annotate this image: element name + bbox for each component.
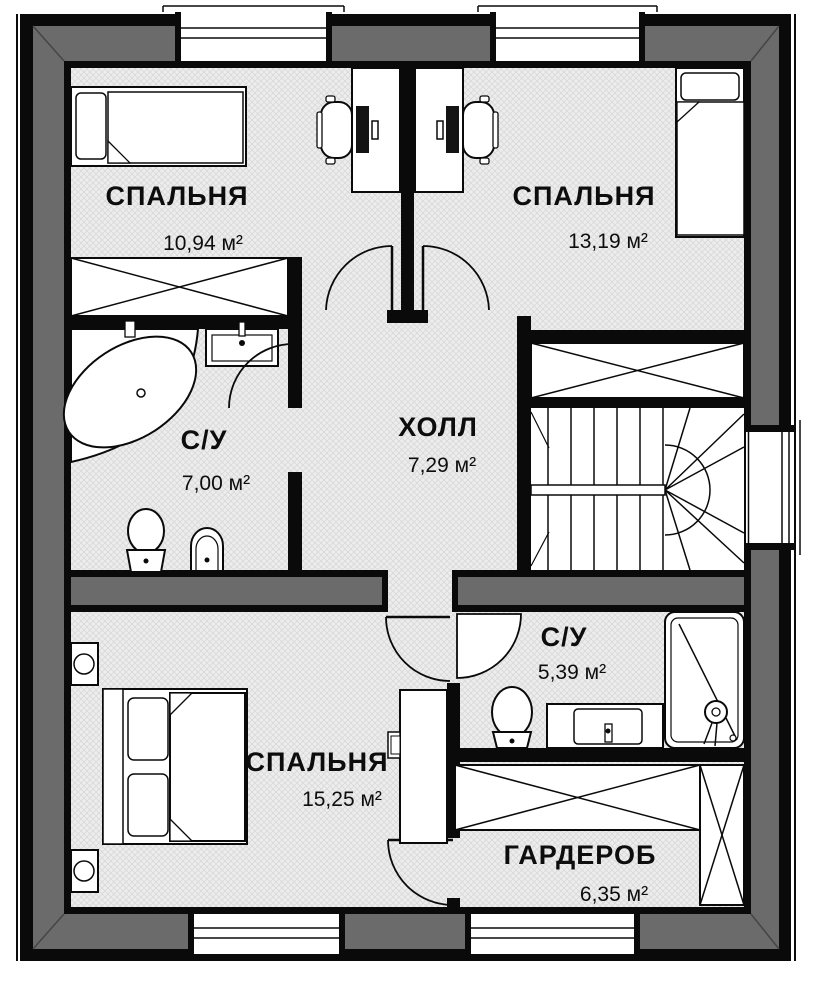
monitor-icon (356, 106, 369, 153)
room-area: 6,35 м² (580, 883, 648, 906)
floor-plan-page: СПАЛЬНЯ 10,94 м² СПАЛЬНЯ 13,19 м² С/У 7,… (0, 0, 815, 1000)
room-label: ХОЛЛ (398, 412, 478, 442)
window-bottom-right (453, 914, 652, 960)
stair-rail (531, 485, 665, 495)
window-top-left (163, 6, 344, 61)
window-bottom-left (176, 914, 357, 960)
blanket-icon (677, 102, 744, 235)
room-area: 10,94 м² (163, 232, 243, 255)
room-area: 7,00 м² (182, 472, 250, 495)
shower-icon (665, 612, 744, 748)
closet-icon (531, 343, 744, 398)
vanity-sink-icon (547, 704, 663, 748)
room-label: СПАЛЬНЯ (513, 181, 656, 211)
double-bed-icon (103, 689, 247, 844)
stairs (531, 408, 744, 570)
bidet-icon (191, 528, 223, 571)
wardrobe-unit-icon (455, 765, 700, 830)
wardrobe-icon (71, 258, 288, 316)
desk-left (352, 68, 400, 192)
room-label: С/У (541, 622, 588, 652)
pillow-icon (76, 93, 106, 159)
tap-icon (125, 321, 135, 337)
room-area: 13,19 м² (568, 230, 648, 253)
nightstand-icon (71, 850, 98, 892)
room-label: СПАЛЬНЯ (246, 747, 389, 777)
pillow-icon (681, 73, 739, 100)
room-area: 15,25 м² (302, 788, 382, 811)
room-label: СПАЛЬНЯ (106, 181, 249, 211)
desk-right (415, 68, 463, 192)
monitor-icon (446, 106, 459, 153)
room-area: 5,39 м² (538, 661, 606, 684)
pillow-icon (128, 698, 168, 760)
nightstand-icon (71, 643, 98, 685)
toilet-icon (492, 687, 532, 748)
room-label: С/У (181, 425, 228, 455)
window-top-right (478, 6, 657, 61)
window-right (744, 420, 800, 555)
pillow-icon (128, 774, 168, 836)
sink-icon (206, 322, 278, 366)
floor-plan-drawing: СПАЛЬНЯ 10,94 м² СПАЛЬНЯ 13,19 м² С/У 7,… (0, 0, 815, 1000)
room-area: 7,29 м² (408, 454, 476, 477)
room-label: ГАРДЕРОБ (504, 840, 657, 870)
blanket-icon (170, 693, 245, 841)
toilet-icon (127, 509, 165, 572)
middle-wall-band (71, 570, 744, 612)
wardrobe-unit-icon (700, 765, 744, 905)
blanket-icon (108, 92, 243, 163)
